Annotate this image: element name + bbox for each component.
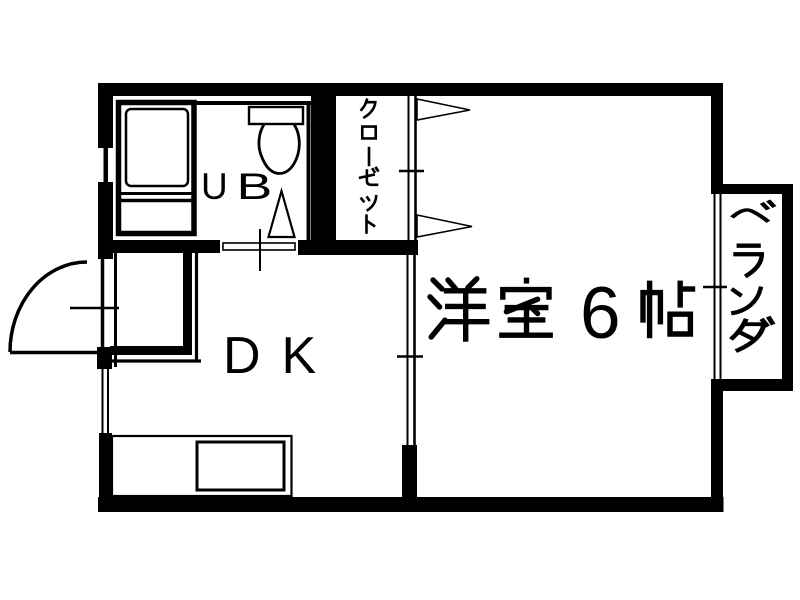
svg-text:DK: DK <box>223 327 337 385</box>
svg-text:U: U <box>201 166 228 207</box>
svg-text:6: 6 <box>580 273 621 354</box>
svg-text:B: B <box>237 165 273 207</box>
